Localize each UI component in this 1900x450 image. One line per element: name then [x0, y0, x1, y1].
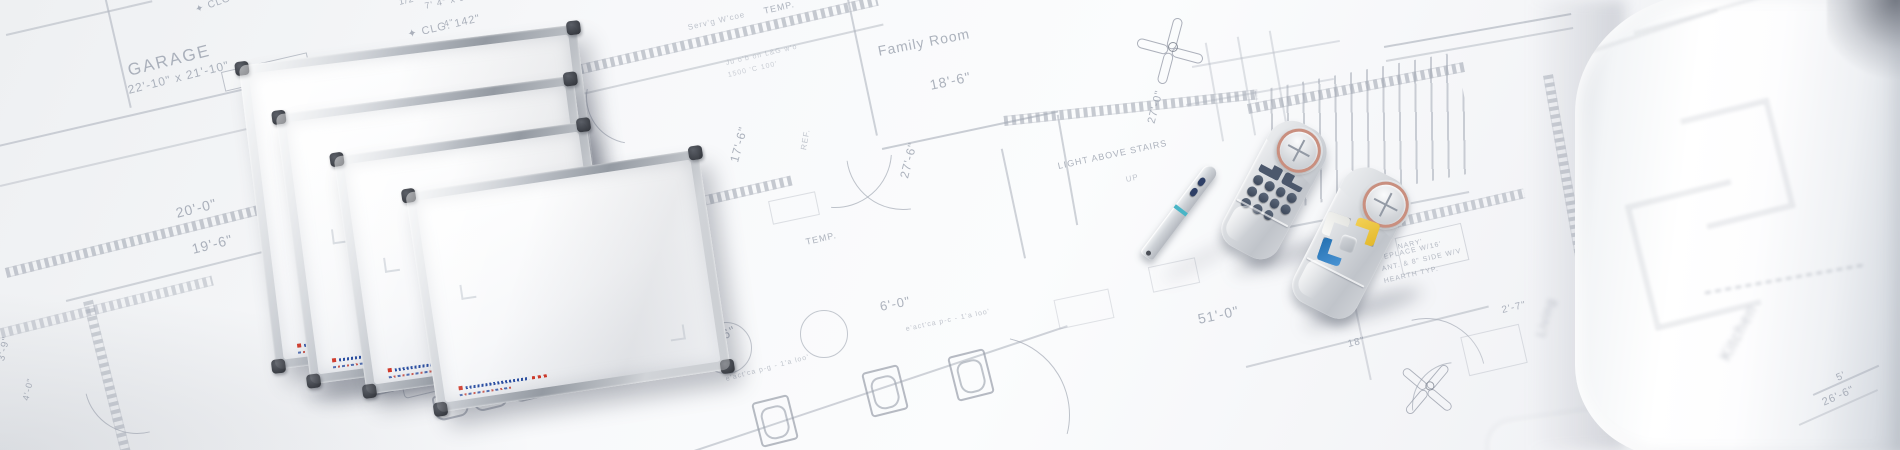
fan-blade [1404, 388, 1429, 416]
fan-blade [1136, 37, 1169, 55]
blueprint-line [1205, 43, 1224, 142]
registration-mark [669, 325, 686, 342]
whiteboard-surface [415, 160, 720, 403]
pen-button [1197, 176, 1207, 187]
circle [800, 310, 848, 358]
logo-red-dot [297, 343, 301, 347]
blueprint-label: TEMP. [763, 0, 796, 16]
window [768, 191, 820, 224]
blueprint-label: LIGHT ABOVE STAIRS [1057, 139, 1168, 171]
pen-teal-ring [1174, 204, 1188, 216]
fan-center [1168, 42, 1178, 52]
dotted-line [1575, 10, 1717, 64]
blueprint-wall [555, 0, 879, 80]
blueprint-line [6, 0, 152, 35]
rolled-blueprint: Kitchen 5' 26'-6" [1575, 0, 1900, 450]
blueprint-label: 3'-9" [0, 336, 12, 363]
corner-cap [306, 373, 322, 389]
key [1251, 173, 1264, 186]
corner-cap [576, 117, 592, 133]
corner-cap [566, 20, 582, 36]
blueprint-label: 18'-6" [929, 69, 973, 91]
product-banner: ✦ CLG. 142" 1/2 7' 4" x 5 4" ✦ CLG. 142"… [0, 0, 1900, 450]
armchair-symbol [861, 364, 909, 418]
blueprint-label: 51'-0" [1197, 303, 1241, 325]
registration-mark [459, 283, 476, 300]
blueprint-label: 1/2 [398, 0, 415, 7]
corner-cap [271, 358, 287, 374]
ceiling-fan-symbol [1140, 14, 1204, 78]
corner-cap [563, 71, 579, 87]
fan-center [1425, 381, 1434, 390]
key [1274, 185, 1287, 198]
dotted-line [1635, 0, 1837, 34]
corner-cap [687, 145, 703, 161]
logo-red-dot [388, 368, 393, 373]
pen-button [1189, 187, 1199, 198]
blueprint-label: TEMP. [805, 231, 838, 247]
blueprint-label: Family Room [877, 26, 971, 58]
blueprint-line [1237, 37, 1256, 136]
key [1263, 179, 1276, 192]
blueprint-label: 2'-7" [1501, 301, 1528, 316]
corner-cap [362, 383, 378, 399]
pen-tip [1145, 250, 1152, 257]
corner-cap [719, 358, 735, 374]
roll-curl [1827, 0, 1900, 87]
logo-dotted-line [465, 376, 529, 388]
registration-mark [383, 256, 400, 273]
blueprint-label: 19'-6" [190, 232, 234, 256]
fan-blade [1426, 387, 1454, 412]
logo-red-dot [332, 358, 336, 362]
detail-box [1460, 324, 1527, 376]
blueprint-label: REF. [800, 128, 812, 150]
blueprint-wall [0, 276, 214, 346]
logo-red-dot [458, 386, 463, 391]
corner-cap [401, 188, 417, 204]
key [1268, 197, 1281, 210]
blueprint-label: ✦ CLG. 142" [194, 0, 262, 16]
corner-cap [329, 152, 345, 168]
corner-cap [234, 61, 250, 77]
key [1245, 185, 1258, 198]
corner-cap [433, 401, 449, 417]
pad-center [1338, 234, 1358, 254]
key [1279, 203, 1292, 216]
armchair-symbol [751, 394, 799, 448]
fan-blade [1401, 366, 1429, 391]
blueprint-label: 17'-6" [728, 125, 749, 163]
window [1053, 289, 1114, 330]
blueprint-line [1192, 40, 1340, 68]
ceiling-fan-symbol [1403, 359, 1455, 411]
corner-cap [271, 109, 287, 125]
blueprint-label: UP [1125, 173, 1140, 184]
blueprint-label: 4'-0" [22, 377, 36, 401]
whiteboard-small [405, 149, 731, 412]
blueprint-line [1001, 149, 1026, 259]
roll-plan-outline [1609, 92, 1842, 332]
blueprint-label: e'act'ca p-c - 1'a loo' [905, 308, 991, 333]
armchair-symbol [947, 348, 995, 402]
blueprint-label: 7' 4" x 5 [424, 0, 466, 11]
blueprint-line [845, 0, 878, 136]
cross-icon [1292, 140, 1305, 162]
blueprint-label: 6'-0" [879, 294, 912, 313]
key [1257, 191, 1270, 204]
logo-red-dashes [532, 374, 548, 379]
fan-blade [1156, 52, 1174, 85]
cross-icon [1379, 193, 1393, 217]
blueprint-label: 27'-6" [898, 141, 918, 179]
key [1285, 191, 1298, 204]
